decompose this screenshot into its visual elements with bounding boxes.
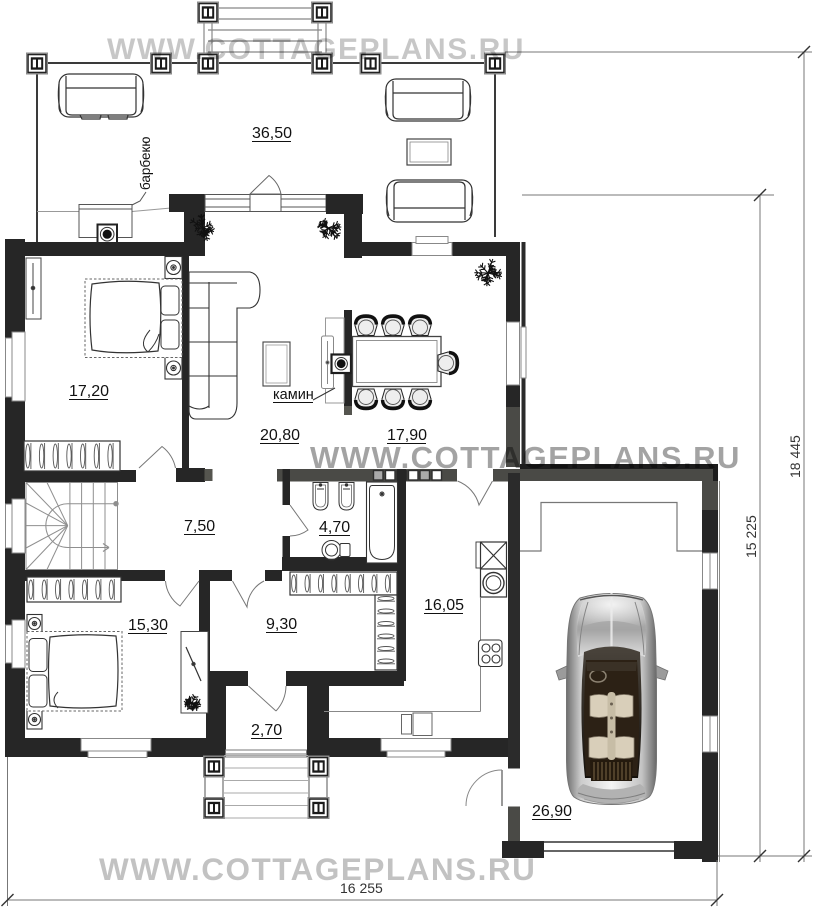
svg-text:9,30: 9,30 <box>266 616 297 633</box>
svg-text:20,80: 20,80 <box>260 427 300 444</box>
svg-text:2,70: 2,70 <box>251 722 282 739</box>
svg-text:4,70: 4,70 <box>319 519 350 536</box>
svg-text:WWW.COTTAGEPLANS.RU: WWW.COTTAGEPLANS.RU <box>310 440 741 475</box>
svg-text:18 445: 18 445 <box>787 435 803 478</box>
svg-text:барбекю: барбекю <box>138 136 153 190</box>
svg-text:16,05: 16,05 <box>424 597 464 614</box>
svg-text:7,50: 7,50 <box>184 518 215 535</box>
svg-text:15,30: 15,30 <box>128 617 168 634</box>
svg-text:WWW.COTTAGEPLANS.RU: WWW.COTTAGEPLANS.RU <box>99 851 536 887</box>
svg-text:26,90: 26,90 <box>532 803 572 820</box>
svg-text:17,20: 17,20 <box>69 383 109 400</box>
svg-text:WWW.COTTAGEPLANS.RU: WWW.COTTAGEPLANS.RU <box>107 33 525 66</box>
svg-text:36,50: 36,50 <box>252 125 292 142</box>
svg-text:камин: камин <box>273 387 314 403</box>
svg-text:15 225: 15 225 <box>743 515 759 558</box>
